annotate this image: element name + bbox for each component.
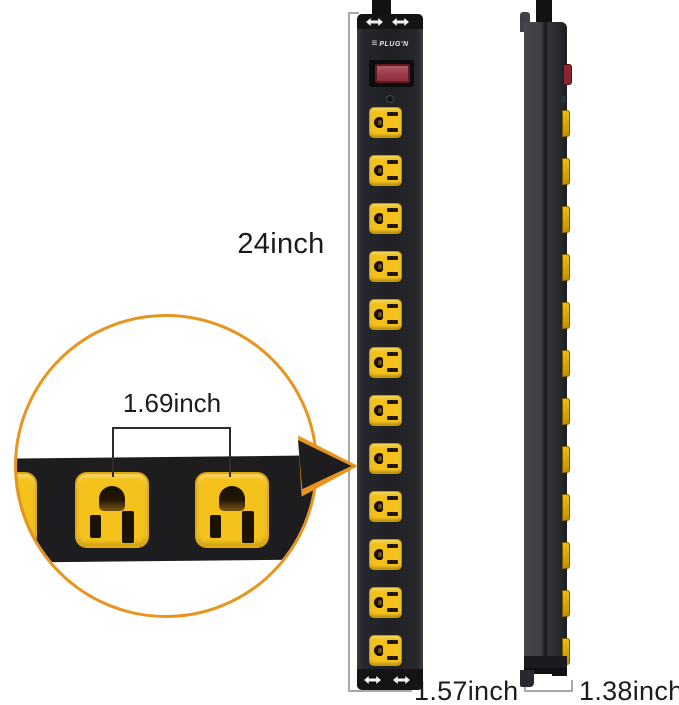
neutral-slot	[90, 515, 101, 538]
hot-slot	[387, 160, 398, 164]
hot-slot	[387, 544, 398, 548]
side-outlet-column	[562, 110, 571, 670]
outlet-side-profile	[562, 110, 570, 137]
front-width-bracket-line	[348, 690, 412, 692]
ground-hole	[374, 549, 383, 560]
power-strip-body-side	[524, 22, 567, 670]
hot-slot	[14, 511, 22, 543]
brand-logo: ≡ PLUG'N	[357, 39, 423, 49]
outlet	[369, 539, 402, 570]
depth-bracket-line	[524, 690, 573, 692]
ground-hole	[374, 213, 383, 224]
neutral-slot	[210, 515, 221, 538]
neutral-slot	[387, 560, 398, 564]
neutral-slot	[387, 608, 398, 612]
ground-hole	[219, 486, 245, 511]
neutral-slot	[387, 224, 398, 228]
neutral-slot	[387, 368, 398, 372]
product-dimension-image: 24inch 1.57inch 1.38inch ≡ PLUG'N	[0, 0, 679, 705]
side-depth-label: 1.38inch	[579, 676, 679, 705]
dimension-callout-bubble: 1.69inch	[14, 314, 318, 618]
neutral-slot	[387, 464, 398, 468]
outlet	[369, 491, 402, 522]
outlet	[369, 299, 402, 330]
front-width-label: 1.57inch	[414, 676, 518, 705]
front-outlet-column	[369, 107, 402, 667]
neutral-slot	[387, 176, 398, 180]
neutral-slot	[387, 272, 398, 276]
outlet	[369, 443, 402, 474]
spacing-bracket-tick-left	[112, 427, 114, 477]
hot-slot	[122, 511, 134, 543]
height-label: 24inch	[225, 228, 337, 261]
outlet	[369, 155, 402, 186]
outlet	[369, 107, 402, 138]
ground-hole	[374, 597, 383, 608]
spacing-bracket-tick-right	[229, 427, 231, 477]
outlet-side-profile	[562, 254, 570, 281]
outlet-side-profile	[562, 350, 570, 377]
hot-slot	[387, 448, 398, 452]
outlet-side-profile	[562, 542, 570, 569]
hot-slot	[387, 256, 398, 260]
dimension-line-vertical	[348, 12, 350, 692]
side-bottom-step	[552, 670, 567, 676]
dimension-tick-top	[348, 12, 359, 14]
ground-hole	[374, 165, 383, 176]
outlet-spacing-label: 1.69inch	[105, 388, 239, 419]
ground-hole	[374, 501, 383, 512]
brand-name: PLUG'N	[379, 41, 408, 48]
plug-icon: ≡	[371, 39, 377, 49]
hot-slot	[242, 511, 254, 543]
power-switch	[375, 64, 410, 83]
outlet-zoomed	[75, 472, 149, 548]
ground-hole	[99, 486, 125, 511]
outlet-side-profile	[562, 206, 570, 233]
neutral-slot	[387, 512, 398, 516]
outlet-zoomed	[195, 472, 269, 548]
ground-hole	[374, 261, 383, 272]
reset-button-side-profile	[561, 96, 566, 103]
hot-slot	[387, 304, 398, 308]
hot-slot	[387, 592, 398, 596]
ground-hole	[374, 405, 383, 416]
outlet-side-profile	[562, 398, 570, 425]
callout-outlets	[17, 317, 315, 615]
outlet-zoomed	[14, 472, 37, 548]
outlet-side-profile	[562, 590, 570, 617]
outlet-side-profile	[562, 494, 570, 521]
hot-slot	[387, 400, 398, 404]
outlet	[369, 587, 402, 618]
hot-slot	[387, 352, 398, 356]
ground-hole	[374, 309, 383, 320]
ground-hole	[374, 645, 383, 656]
hot-slot	[387, 112, 398, 116]
hot-slot	[387, 496, 398, 500]
outlet-side-profile	[562, 302, 570, 329]
hot-slot	[387, 640, 398, 644]
ground-hole	[374, 117, 383, 128]
outlet-side-profile	[562, 446, 570, 473]
mounting-foot	[520, 670, 534, 687]
neutral-slot	[387, 320, 398, 324]
hot-slot	[387, 208, 398, 212]
outlet	[369, 395, 402, 426]
neutral-slot	[387, 416, 398, 420]
callout-tail-pointer	[298, 432, 358, 500]
outlet	[369, 347, 402, 378]
outlet	[369, 203, 402, 234]
neutral-slot	[387, 128, 398, 132]
ground-hole	[374, 453, 383, 464]
neutral-slot	[387, 656, 398, 660]
ground-hole	[374, 357, 383, 368]
power-switch-side-profile	[563, 64, 572, 85]
reset-button	[386, 95, 394, 103]
outlet	[369, 635, 402, 666]
outlet	[369, 251, 402, 282]
outlet-side-profile	[562, 158, 570, 185]
depth-bracket-tick-right	[571, 680, 573, 692]
spacing-bracket-line	[112, 427, 231, 429]
